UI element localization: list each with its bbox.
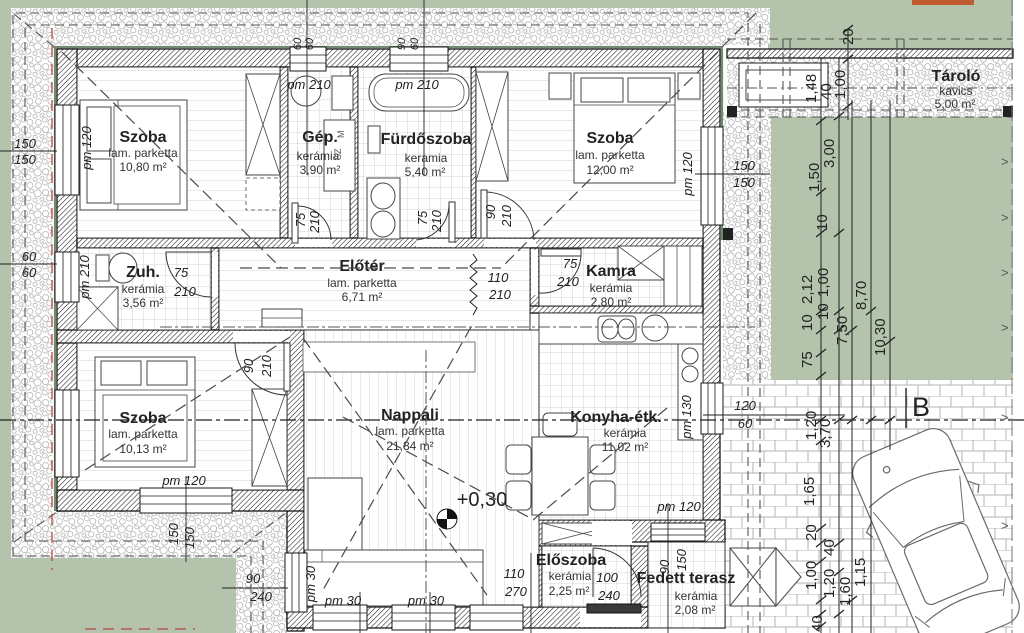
svg-text:110: 110 [488, 270, 509, 285]
svg-text:2,08 m²: 2,08 m² [675, 603, 716, 617]
svg-text:60: 60 [22, 249, 37, 264]
svg-text:100: 100 [596, 570, 618, 585]
svg-text:>: > [1001, 320, 1009, 335]
svg-text:40: 40 [809, 615, 826, 632]
svg-text:pm 120: pm 120 [79, 126, 94, 171]
svg-text:keramia: keramia [405, 151, 448, 165]
svg-text:>: > [1001, 518, 1009, 533]
svg-text:150: 150 [182, 526, 197, 548]
svg-text:2,25 m²: 2,25 m² [549, 584, 590, 598]
svg-text:240: 240 [597, 588, 620, 603]
svg-text:lam. parketta: lam. parketta [327, 276, 397, 290]
svg-text:pm 120: pm 120 [680, 152, 695, 197]
svg-text:1,00: 1,00 [803, 561, 820, 590]
svg-text:pm 30: pm 30 [324, 593, 362, 608]
svg-text:60: 60 [738, 416, 753, 431]
svg-text:150: 150 [674, 548, 689, 570]
svg-text:pm 120: pm 120 [656, 499, 701, 514]
svg-text:8,70: 8,70 [853, 281, 870, 310]
svg-text:1,15: 1,15 [852, 558, 869, 587]
svg-text:240: 240 [249, 589, 272, 604]
svg-text:kavics: kavics [939, 84, 972, 98]
svg-text:210: 210 [307, 210, 322, 233]
svg-text:kerámia: kerámia [675, 589, 718, 603]
svg-text:kerámia: kerámia [122, 282, 165, 296]
svg-text:pm 210: pm 210 [394, 77, 439, 92]
svg-text:2,12: 2,12 [799, 275, 816, 304]
svg-text:210: 210 [499, 204, 514, 227]
svg-text:kerámia: kerámia [549, 569, 592, 583]
svg-text:Fürdőszoba: Fürdőszoba [381, 131, 472, 148]
svg-text:pm 120: pm 120 [161, 473, 206, 488]
svg-text:Zuh.: Zuh. [126, 264, 160, 281]
svg-text:kerámia: kerámia [604, 426, 647, 440]
svg-text:3,70: 3,70 [817, 419, 834, 448]
svg-text:pm 210: pm 210 [286, 77, 331, 92]
svg-text:B: B [912, 392, 930, 422]
svg-text:Nappali: Nappali [381, 407, 439, 424]
svg-text:75: 75 [415, 210, 430, 225]
svg-text:21,84 m²: 21,84 m² [386, 439, 433, 453]
svg-text:150: 150 [733, 175, 755, 190]
svg-text:10: 10 [799, 314, 816, 331]
svg-text:3,00: 3,00 [821, 139, 838, 168]
svg-text:>: > [1001, 410, 1009, 425]
svg-text:270: 270 [504, 584, 527, 599]
svg-text:60: 60 [292, 37, 304, 50]
svg-text:Gép.: Gép. [302, 129, 338, 146]
svg-text:1,00: 1,00 [815, 268, 832, 297]
svg-text:90: 90 [396, 37, 408, 50]
svg-text:lam. parketta: lam. parketta [108, 146, 178, 160]
svg-text:lam. parketta: lam. parketta [375, 424, 445, 438]
svg-text:Szoba: Szoba [586, 130, 633, 147]
svg-text:90: 90 [483, 204, 498, 219]
svg-text:210: 210 [556, 274, 579, 289]
svg-text:>: > [1001, 210, 1009, 225]
svg-text:>: > [1001, 154, 1009, 169]
svg-text:10: 10 [815, 303, 832, 320]
svg-text:60: 60 [304, 37, 316, 50]
svg-text:1,65: 1,65 [801, 477, 818, 506]
svg-text:lam. parketta: lam. parketta [108, 427, 178, 441]
svg-text:20: 20 [803, 524, 820, 541]
svg-text:75: 75 [293, 212, 308, 227]
svg-text:>: > [1001, 265, 1009, 280]
svg-text:210: 210 [259, 354, 274, 377]
svg-text:75: 75 [799, 351, 816, 368]
svg-text:210: 210 [173, 284, 196, 299]
svg-text:90: 90 [246, 571, 261, 586]
svg-text:M: M [336, 131, 346, 139]
svg-text:10,80 m²: 10,80 m² [119, 160, 166, 174]
svg-text:Tároló: Tároló [932, 68, 981, 85]
svg-text:3,90 m²: 3,90 m² [300, 163, 341, 177]
svg-text:Előszoba: Előszoba [536, 552, 606, 569]
svg-text:75: 75 [174, 265, 189, 280]
svg-text:5,40 m²: 5,40 m² [405, 165, 446, 179]
svg-text:Szoba: Szoba [119, 410, 166, 427]
svg-text:150: 150 [733, 158, 755, 173]
svg-text:Előtér: Előtér [339, 258, 384, 275]
svg-text:1,00: 1,00 [832, 70, 849, 99]
svg-text:7,50: 7,50 [834, 316, 851, 345]
svg-text:1,20: 1,20 [821, 569, 838, 598]
svg-text:5,00 m²: 5,00 m² [935, 97, 976, 111]
svg-text:20: 20 [840, 28, 857, 45]
svg-text:pm 130: pm 130 [679, 395, 694, 440]
svg-text:10,13 m²: 10,13 m² [119, 442, 166, 456]
svg-text:3,56 m²: 3,56 m² [123, 296, 164, 310]
svg-text:90: 90 [657, 559, 672, 574]
svg-text:110: 110 [504, 566, 525, 581]
svg-text:SZ: SZ [333, 148, 343, 160]
svg-text:Kamra: Kamra [586, 263, 636, 280]
svg-text:40: 40 [821, 539, 838, 556]
svg-text:10,30: 10,30 [872, 318, 889, 356]
svg-text:pm 210: pm 210 [77, 255, 92, 300]
svg-text:11,02 m²: 11,02 m² [602, 440, 648, 454]
svg-text:10: 10 [814, 214, 831, 231]
svg-text:pm 30: pm 30 [303, 565, 318, 603]
svg-text:Fedett terasz: Fedett terasz [637, 570, 736, 587]
svg-text:2,80 m²: 2,80 m² [591, 295, 632, 309]
svg-text:60: 60 [409, 37, 421, 50]
svg-text:6,71 m²: 6,71 m² [342, 290, 383, 304]
svg-text:kerámia: kerámia [590, 281, 633, 295]
svg-text:120: 120 [734, 398, 756, 413]
svg-text:75: 75 [563, 256, 578, 271]
svg-text:210: 210 [488, 287, 511, 302]
svg-text:12,00 m²: 12,00 m² [586, 163, 633, 177]
svg-text:60: 60 [22, 265, 37, 280]
svg-text:210: 210 [429, 209, 444, 232]
svg-text:+0,30: +0,30 [457, 489, 508, 511]
